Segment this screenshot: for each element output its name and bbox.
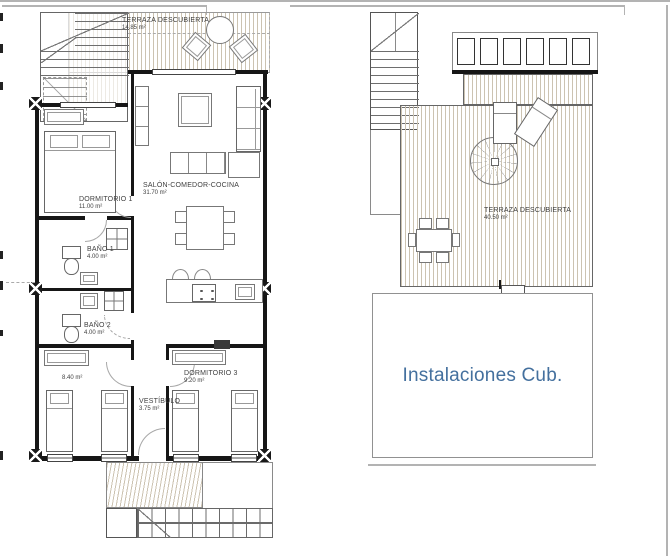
closet-shelf (214, 340, 230, 349)
edge-tick (0, 330, 3, 336)
room-label-hall: VESTÍBULO 3.75 m² (139, 398, 180, 414)
closet (44, 109, 84, 125)
outdoor-table (416, 229, 452, 252)
sofa-chaise (228, 152, 260, 178)
room-name: BAÑO 2 (84, 322, 111, 329)
installations-box: Instalaciones Cub. (372, 293, 593, 458)
edge-tick (0, 82, 3, 90)
room-label-terrace: TERRAZA DESCUBIERTA 14.85 m² (122, 17, 209, 33)
outdoor-chair (419, 252, 432, 263)
dining-chair (175, 233, 187, 245)
stair-treads (41, 51, 129, 77)
wall (35, 344, 131, 348)
cabinet (135, 86, 149, 146)
room-name: BAÑO 1 (87, 246, 114, 253)
wall (166, 344, 169, 360)
room-label-living: SALÓN-COMEDOR-COCINA 31.70 m² (143, 182, 239, 198)
washbasin (80, 293, 98, 309)
dining-chair (175, 211, 187, 223)
room-name: VESTÍBULO (139, 398, 180, 405)
guide-line-right (290, 5, 625, 7)
column-marker (29, 97, 42, 110)
wall (131, 344, 134, 360)
dining-table (186, 206, 224, 250)
floorplan-canvas: TERRAZA DESCUBIERTA 14.85 m² SALÓN-COMED… (0, 0, 670, 558)
door-arc (138, 428, 165, 455)
door-arc (106, 362, 131, 387)
door-arc (85, 220, 107, 242)
boundary-line (203, 462, 273, 463)
edge-tick (0, 251, 3, 259)
pergola-panel (480, 38, 498, 65)
toilet-bowl (64, 326, 79, 343)
edge-tick (0, 44, 3, 53)
twin-bed (101, 390, 128, 452)
installations-label: Instalaciones Cub. (403, 365, 563, 387)
column-marker (29, 282, 42, 295)
stair-diagonal (371, 13, 419, 51)
room-area: 40.50 m² (484, 215, 571, 222)
bar-stool (194, 269, 211, 279)
round-table (206, 16, 234, 44)
shower (104, 291, 124, 311)
room-name: DORMITORIO 3 (184, 370, 238, 377)
section-line (6, 282, 35, 283)
room-area: 14.85 m² (122, 25, 209, 32)
bed-line (45, 150, 115, 151)
dining-chair (223, 211, 235, 223)
deck-joint-line (128, 33, 270, 34)
wall (263, 70, 267, 460)
pergola-panel (572, 38, 590, 65)
lower-deck (106, 462, 203, 508)
outdoor-chair (436, 252, 449, 263)
washbasin (80, 272, 98, 285)
twin-bed (231, 390, 258, 452)
room-name: SALÓN-COMEDOR-COCINA (143, 182, 239, 189)
wall (35, 216, 85, 220)
outdoor-chair (452, 233, 460, 247)
window (152, 69, 236, 75)
tv-unit (178, 93, 212, 127)
bar-stool (172, 269, 189, 279)
room-label-roof-terrace: TERRAZA DESCUBIERTA 40.50 m² (484, 207, 571, 223)
room-label-bedroom2: 8.40 m² (62, 375, 82, 382)
spiral-stair (470, 137, 518, 185)
outdoor-chair (419, 218, 432, 229)
pergola-panel (457, 38, 475, 65)
sink (235, 284, 255, 300)
column-marker (29, 449, 42, 462)
right-border-line (666, 5, 668, 556)
sun-lounger (493, 102, 517, 144)
stove (192, 284, 216, 302)
room-area: 3.75 m² (139, 406, 180, 413)
edge-tick (0, 281, 3, 290)
room-label-bath1: BAÑO 1 4.00 m² (87, 246, 114, 262)
pergola-panel (549, 38, 567, 65)
pergola-panel (503, 38, 521, 65)
guide-line-left (2, 5, 207, 7)
boundary-line (370, 214, 400, 215)
boundary-line (272, 462, 273, 508)
edge-tick (0, 13, 3, 21)
sideboard (170, 152, 226, 174)
room-label-bedroom3: DORMITORIO 3 9.20 m² (184, 370, 238, 386)
window (101, 454, 127, 462)
column-marker (258, 449, 271, 462)
room-area: 9.20 m² (184, 378, 238, 385)
boundary-line (370, 130, 371, 215)
room-name: DORMITORIO 1 (79, 196, 133, 203)
toilet-bowl (64, 258, 79, 275)
outdoor-chair (436, 218, 449, 229)
window (60, 102, 116, 108)
wall (131, 70, 134, 196)
twin-bed (46, 390, 73, 452)
room-name: TERRAZA DESCUBIERTA (484, 207, 571, 214)
room-area: 31.70 m² (143, 190, 239, 197)
closet (44, 350, 89, 366)
stair-diagonal (137, 508, 171, 538)
edge-tick (0, 451, 3, 460)
room-label-bath2: BAÑO 2 4.00 m² (84, 322, 111, 338)
dining-chair (223, 233, 235, 245)
pergola-panel (526, 38, 544, 65)
outdoor-chair (408, 233, 416, 247)
room-area: 4.00 m² (84, 330, 111, 337)
wall (131, 386, 134, 460)
room-area: 4.00 m² (87, 254, 114, 261)
window (231, 454, 257, 462)
closet (172, 350, 226, 365)
roof-deck (463, 74, 593, 105)
guide-drop-2 (624, 5, 625, 15)
room-name: TERRAZA DESCUBIERTA (122, 17, 209, 24)
window (173, 454, 199, 462)
room-area: 11.00 m² (79, 204, 133, 211)
window (47, 454, 73, 462)
top-border-line (0, 0, 670, 2)
room-label-bedroom1: DORMITORIO 1 11.00 m² (79, 196, 133, 212)
wall (131, 216, 134, 313)
sofa (236, 86, 261, 152)
stair-landing (106, 508, 137, 538)
room-area: 8.40 m² (62, 375, 82, 382)
underline (368, 464, 596, 466)
